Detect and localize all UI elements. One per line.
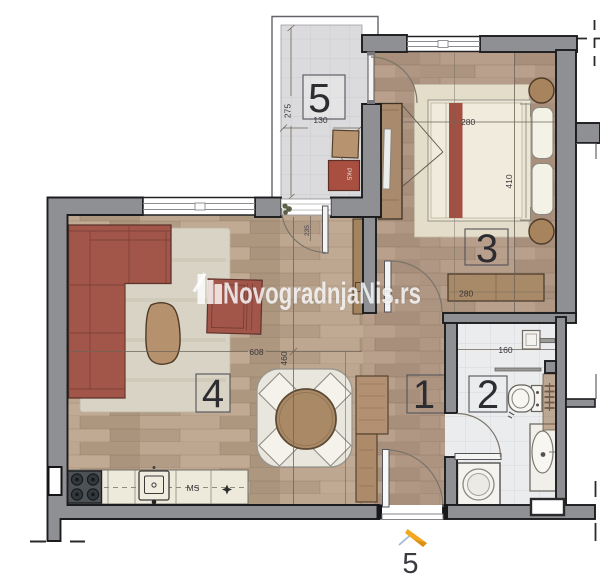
svg-text:1: 1 bbox=[413, 373, 435, 417]
svg-text:235: 235 bbox=[304, 225, 311, 236]
svg-text:160: 160 bbox=[498, 345, 512, 355]
svg-text:3: 3 bbox=[476, 227, 498, 271]
svg-text:608: 608 bbox=[249, 347, 263, 357]
svg-text:280: 280 bbox=[461, 117, 475, 127]
svg-text:2: 2 bbox=[477, 373, 499, 417]
svg-text:130: 130 bbox=[313, 115, 327, 125]
svg-text:5: 5 bbox=[402, 548, 418, 580]
svg-text:PK5: PK5 bbox=[345, 168, 352, 181]
svg-text:NovogradnjaNis.rs: NovogradnjaNis.rs bbox=[223, 276, 421, 311]
svg-text:275: 275 bbox=[283, 104, 293, 118]
svg-text:4: 4 bbox=[202, 372, 224, 416]
svg-text:280: 280 bbox=[459, 289, 473, 299]
svg-text:460: 460 bbox=[279, 351, 289, 365]
svg-text:MS: MS bbox=[187, 483, 200, 493]
svg-text:410: 410 bbox=[504, 174, 514, 188]
